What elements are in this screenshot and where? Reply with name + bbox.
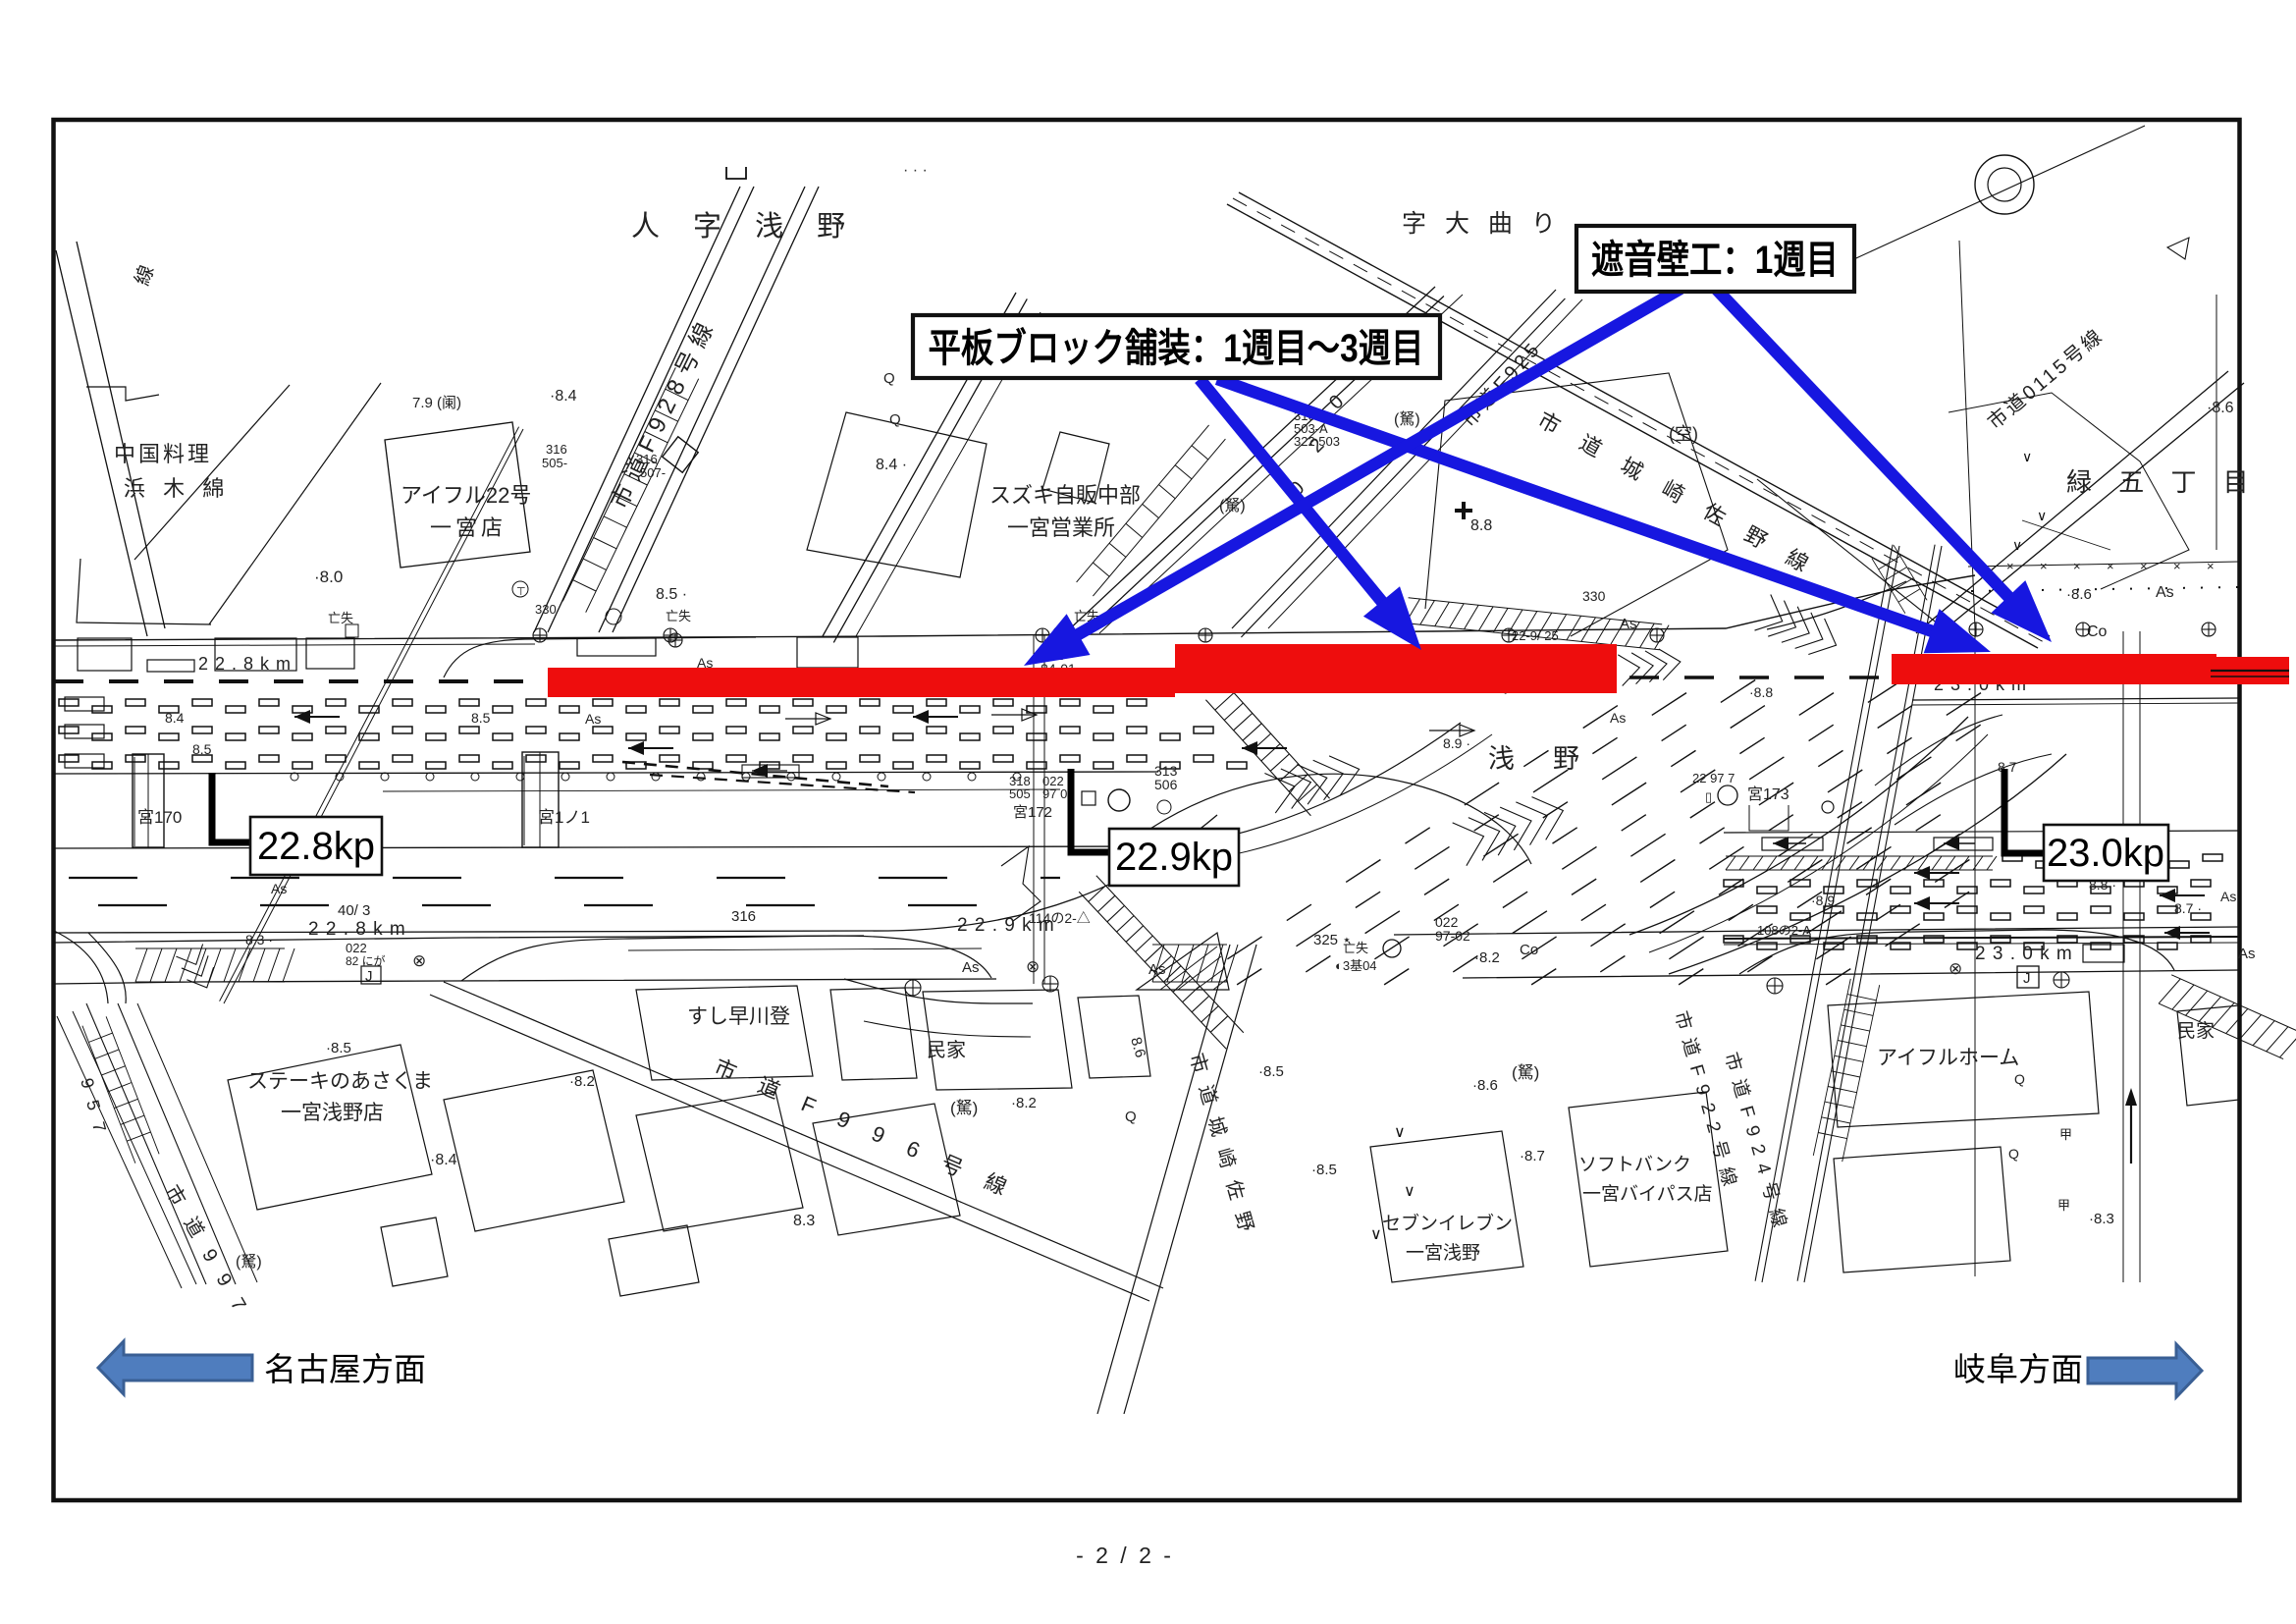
svg-text:505: 505 xyxy=(1009,786,1031,801)
svg-text:スズキ自販中部: スズキ自販中部 xyxy=(989,483,1141,508)
svg-text:·8.2: ·8.2 xyxy=(1011,1095,1037,1111)
svg-text:2 3 . 0 k m: 2 3 . 0 k m xyxy=(1975,944,2073,964)
svg-text:8.8: 8.8 xyxy=(1470,517,1492,534)
svg-text:名古屋方面: 名古屋方面 xyxy=(264,1351,426,1387)
svg-text:·8.2: ·8.2 xyxy=(1474,949,1500,966)
svg-text:(駑): (駑) xyxy=(1219,496,1246,514)
svg-text:∨: ∨ xyxy=(1394,1124,1406,1141)
svg-text:×: × xyxy=(2107,559,2114,573)
svg-text:民家: 民家 xyxy=(927,1039,966,1061)
svg-text:甲: 甲 xyxy=(2059,1127,2072,1142)
svg-text:·8.0: ·8.0 xyxy=(314,568,343,586)
svg-text:◐3基04: ◐3基04 xyxy=(1335,958,1377,973)
svg-text:ソフトバンク: ソフトバンク xyxy=(1578,1154,1691,1175)
svg-text:·8.6: ·8.6 xyxy=(2066,586,2092,603)
svg-text:宮170: 宮170 xyxy=(137,808,182,827)
svg-text:·8.2: ·8.2 xyxy=(569,1073,595,1090)
svg-text:アイフル22号: アイフル22号 xyxy=(400,483,531,508)
svg-text:遮音壁工：1週目: 遮音壁工：1週目 xyxy=(1591,239,1839,282)
svg-text:Co: Co xyxy=(1520,942,1538,958)
svg-text:·8.8: ·8.8 xyxy=(1749,684,1773,700)
svg-text:316: 316 xyxy=(636,452,658,466)
svg-text:(空): (空) xyxy=(1669,424,1698,444)
svg-text:·8.3: ·8.3 xyxy=(2089,1211,2114,1227)
svg-text:一宮店: 一宮店 xyxy=(430,515,507,540)
svg-text:浅 野: 浅 野 xyxy=(1488,744,1585,774)
svg-text:· · ·: · · · xyxy=(903,162,928,179)
svg-text:23.0kp: 23.0kp xyxy=(2047,832,2164,875)
svg-text:すし早川登: すし早川登 xyxy=(687,1005,790,1028)
svg-text:亡失: 亡失 xyxy=(666,609,691,623)
svg-text:Q: Q xyxy=(2008,1146,2019,1162)
svg-text:宮1ノ1: 宮1ノ1 xyxy=(538,808,590,827)
svg-text:8.3: 8.3 xyxy=(793,1213,815,1229)
svg-text:330: 330 xyxy=(535,602,557,617)
svg-text:∨: ∨ xyxy=(2037,508,2047,523)
svg-text:∨: ∨ xyxy=(1404,1183,1415,1200)
svg-text:(駑): (駑) xyxy=(236,1252,262,1271)
svg-text:一宮浅野店: 一宮浅野店 xyxy=(281,1102,384,1124)
svg-text:97-02: 97-02 xyxy=(1435,928,1470,944)
svg-text:×: × xyxy=(2207,559,2215,573)
svg-text:As: As xyxy=(2156,584,2174,601)
svg-text:8.5: 8.5 xyxy=(471,710,491,726)
svg-text:8.3 ·: 8.3 · xyxy=(245,932,273,947)
svg-text:×: × xyxy=(2140,559,2148,573)
svg-text:⊤: ⊤ xyxy=(516,586,526,598)
svg-text:8.5 ·: 8.5 · xyxy=(656,586,687,603)
svg-text:(駑): (駑) xyxy=(1394,409,1420,428)
svg-text:Q: Q xyxy=(2014,1071,2025,1087)
svg-text:(駑): (駑) xyxy=(950,1099,978,1117)
svg-text:亡失: 亡失 xyxy=(328,611,353,625)
svg-text:中国料理: 中国料理 xyxy=(114,442,212,466)
svg-text:8.9 ·: 8.9 · xyxy=(1443,735,1470,751)
svg-text:人 字 浅 野: 人 字 浅 野 xyxy=(631,210,858,243)
svg-text:As: As xyxy=(585,711,601,727)
svg-text:22.9kp: 22.9kp xyxy=(1115,836,1233,879)
svg-text:2 2 . 8 k m: 2 2 . 8 k m xyxy=(308,919,406,940)
svg-text:·8.4: ·8.4 xyxy=(550,388,577,405)
svg-text:·8.9: ·8.9 xyxy=(1811,893,1835,908)
svg-text:As: As xyxy=(2238,946,2256,962)
svg-text:506: 506 xyxy=(1154,777,1178,792)
svg-text:亡失: 亡失 xyxy=(1343,941,1368,955)
svg-text:2 2 . 8 k m: 2 2 . 8 k m xyxy=(198,654,292,674)
svg-text:·8.5: ·8.5 xyxy=(1258,1063,1284,1080)
svg-text:甲: 甲 xyxy=(2057,1198,2070,1213)
svg-text:一宮浅野: 一宮浅野 xyxy=(1406,1242,1480,1264)
svg-text:(駑): (駑) xyxy=(1512,1063,1539,1082)
svg-text:8.4: 8.4 xyxy=(165,710,185,726)
svg-text:×: × xyxy=(2073,559,2081,573)
svg-text:J: J xyxy=(365,968,373,985)
svg-text:·8.7: ·8.7 xyxy=(1520,1148,1545,1164)
svg-text:·8.5: ·8.5 xyxy=(326,1040,351,1056)
svg-text:一宮営業所: 一宮営業所 xyxy=(1007,515,1115,540)
svg-text:As: As xyxy=(1148,961,1166,978)
svg-text:岐阜方面: 岐阜方面 xyxy=(1953,1351,2083,1387)
svg-text:∨: ∨ xyxy=(2022,449,2032,464)
svg-text:507-: 507- xyxy=(640,465,666,480)
svg-text:·8.4: ·8.4 xyxy=(430,1152,457,1168)
svg-text:22 97 7: 22 97 7 xyxy=(1692,771,1735,785)
svg-text:緑 五 丁 目: 緑 五 丁 目 xyxy=(2066,467,2259,497)
svg-text:22.8kp: 22.8kp xyxy=(257,825,375,868)
svg-text:As: As xyxy=(2220,889,2236,904)
svg-text:浜 木 綿: 浜 木 綿 xyxy=(124,476,230,501)
svg-text:114の2-△: 114の2-△ xyxy=(1029,910,1091,926)
svg-text:×: × xyxy=(2006,559,2014,573)
svg-text:As: As xyxy=(271,881,287,896)
svg-text:J: J xyxy=(2023,970,2031,987)
svg-text:×: × xyxy=(2173,559,2181,573)
svg-text:Q: Q xyxy=(1125,1109,1137,1125)
svg-text:⊗: ⊗ xyxy=(412,951,426,970)
svg-text:505-: 505- xyxy=(542,456,567,470)
svg-text:8.4 ·: 8.4 · xyxy=(876,457,907,473)
svg-text:·8.6: ·8.6 xyxy=(2207,400,2234,416)
svg-text:民家: 民家 xyxy=(2177,1020,2215,1042)
svg-text:322 503: 322 503 xyxy=(1294,434,1340,449)
svg-text:As: As xyxy=(1610,710,1626,726)
svg-text:- 2 / 2 -: - 2 / 2 - xyxy=(1076,1543,1174,1568)
svg-text:⊗: ⊗ xyxy=(1026,957,1040,976)
svg-text:As: As xyxy=(962,959,980,976)
svg-text:∨: ∨ xyxy=(2012,537,2022,553)
svg-text:·8.5: ·8.5 xyxy=(1311,1162,1337,1178)
svg-text:40/ 3: 40/ 3 xyxy=(338,902,370,919)
svg-text:330: 330 xyxy=(1582,588,1606,604)
svg-text:·8.6: ·8.6 xyxy=(1472,1077,1498,1094)
svg-text:×: × xyxy=(2040,559,2048,573)
svg-text:一宮バイパス店: 一宮バイパス店 xyxy=(1582,1183,1713,1205)
svg-text:宮172: 宮172 xyxy=(1013,804,1052,821)
svg-text:Q: Q xyxy=(889,411,901,428)
svg-text:アイフルホーム: アイフルホーム xyxy=(1877,1047,2019,1069)
svg-text:字 大 曲 り: 字 大 曲 り xyxy=(1402,210,1562,238)
svg-text:▯: ▯ xyxy=(1705,789,1712,804)
svg-text:8.5: 8.5 xyxy=(192,741,212,757)
svg-text:宮173: 宮173 xyxy=(1747,785,1789,803)
svg-text:セブンイレブン: セブンイレブン xyxy=(1382,1212,1513,1234)
svg-text:022: 022 xyxy=(346,941,367,955)
svg-text:Q: Q xyxy=(883,370,895,387)
svg-text:8.7 ·: 8.7 · xyxy=(2174,900,2202,916)
svg-text:7.9 (阑): 7.9 (阑) xyxy=(412,395,461,411)
svg-text:⊗: ⊗ xyxy=(1949,959,1962,978)
svg-text:平板ブロック舗装：1週目～3週目: 平板ブロック舗装：1週目～3週目 xyxy=(929,326,1424,370)
svg-text:316: 316 xyxy=(546,442,567,457)
svg-text:316: 316 xyxy=(731,908,756,925)
svg-text:∨: ∨ xyxy=(1370,1226,1382,1243)
svg-text:ステーキのあさくま: ステーキのあさくま xyxy=(247,1070,433,1093)
